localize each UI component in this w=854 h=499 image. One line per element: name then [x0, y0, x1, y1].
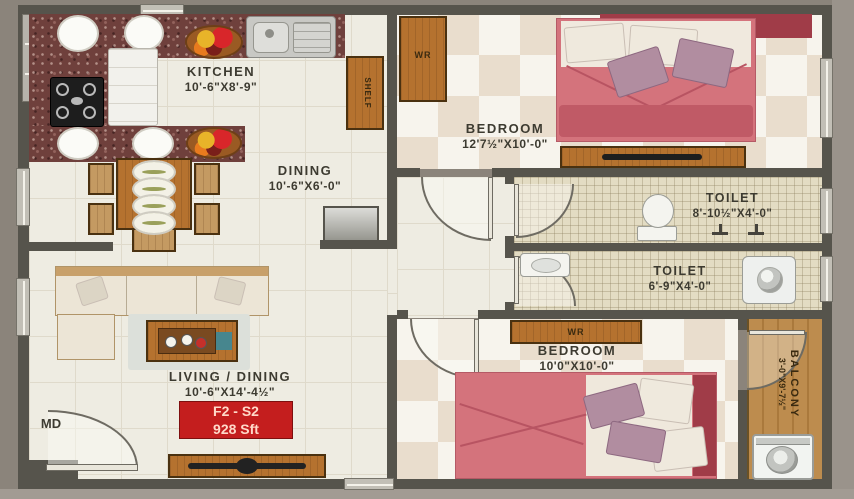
- tray-cup: [195, 337, 207, 349]
- bedroom2-door-leaf: [474, 319, 479, 377]
- wall-bedroom2-top-right: [478, 310, 832, 319]
- bedroom2-label: BEDROOM 10'0"X10'-0": [487, 343, 667, 374]
- kitchen-plate: [132, 127, 174, 160]
- tv-stand: [236, 458, 258, 474]
- window-mullion: [347, 484, 393, 486]
- corridor-opening-floor: [387, 247, 397, 315]
- main-door-leaf: [46, 464, 138, 471]
- toilet1-door-leaf: [514, 184, 519, 236]
- toilet1-tap: [755, 224, 758, 234]
- tray-cup: [181, 334, 193, 346]
- bedroom2-bed: [455, 372, 717, 479]
- sofa-cushion: [75, 275, 109, 306]
- bed-pillow: [564, 22, 627, 63]
- wall-balcony-lower: [738, 390, 747, 480]
- kitchen-plate: [57, 15, 99, 52]
- sofa-chaise: [57, 314, 115, 360]
- bedroom1-name: BEDROOM: [415, 121, 595, 137]
- toilet1-tap: [719, 224, 722, 234]
- window-bottom-living: [344, 478, 394, 490]
- sofa-divider: [126, 276, 127, 315]
- kitchen-label: KITCHEN 10'-6"X8'-9": [131, 64, 311, 95]
- washing-machine-drum: [766, 446, 798, 474]
- bed-fold: [460, 414, 587, 447]
- bed-fold: [459, 403, 583, 445]
- stove-center: [71, 97, 83, 105]
- toilet1-label: TOILET 8'-10½"X4'-0": [640, 191, 825, 221]
- dining-chair: [194, 203, 220, 235]
- floor-plan: SHELF KITCHEN 10'-6"X8'-9" DINING 10'-6"…: [0, 0, 854, 499]
- kitchen-fruit-platter: [186, 127, 242, 159]
- toilet1-wc-tank: [637, 226, 677, 241]
- wall-balcony-upper: [738, 319, 747, 330]
- washbasin-bowl: [531, 258, 561, 273]
- wall-toilets-left-a: [505, 168, 514, 184]
- stove-burner: [56, 83, 69, 96]
- stove: [50, 77, 104, 127]
- window-mullion: [826, 259, 828, 301]
- coffee-table: [146, 320, 238, 362]
- dining-chair: [88, 163, 114, 195]
- window-mullion: [143, 10, 183, 12]
- sofa-back: [56, 267, 268, 276]
- bedroom1-tv: [602, 154, 702, 160]
- wall-toilet-divider: [505, 243, 832, 251]
- window-mullion: [23, 171, 25, 225]
- balcony-dims: 3'-0"X9'-7½": [776, 324, 787, 444]
- bedroom2-dims: 10'0"X10'-0": [487, 359, 667, 374]
- bedroom1-door-leaf: [488, 177, 493, 239]
- tray-cup: [165, 336, 177, 348]
- living-name: LIVING / DINING: [130, 369, 330, 385]
- kitchen-plate: [57, 127, 99, 160]
- kitchen-plate: [124, 15, 164, 51]
- window-right-bedroom1: [820, 58, 833, 138]
- wall-bedroom1-bottom-right: [492, 168, 832, 177]
- sofa-divider: [196, 276, 197, 315]
- sink-faucet: [265, 29, 274, 38]
- toilet2-name: TOILET: [590, 264, 770, 280]
- window-mullion: [23, 281, 25, 335]
- sofa: [55, 266, 269, 316]
- wall-center-vertical-lower: [387, 315, 397, 484]
- dining-chair: [88, 203, 114, 235]
- living-tv-console: [168, 454, 326, 478]
- balcony-label: BALCONY 3'-0"X9'-7½": [768, 324, 800, 444]
- table-mat: [216, 332, 232, 350]
- wall-stub-living-left: [29, 242, 113, 251]
- balcony-name: BALCONY: [787, 324, 800, 444]
- toilet1-name: TOILET: [640, 191, 825, 207]
- sofa-cushion: [214, 276, 247, 306]
- window-right-toilet2: [820, 256, 833, 302]
- main-door-label: MD: [30, 416, 72, 432]
- kitchen-dims: 10'-6"X8'-9": [131, 80, 311, 95]
- living-label: LIVING / DINING 10'-6"X14'-4½": [130, 369, 330, 400]
- window-mullion: [826, 191, 828, 233]
- washing-machine: [752, 434, 814, 480]
- study-table: [323, 206, 379, 242]
- dining-label: DINING 10'-6"X6'-0": [215, 163, 395, 194]
- bedroom2-name: BEDROOM: [487, 343, 667, 359]
- kitchen-name: KITCHEN: [131, 64, 311, 80]
- toilet2-door-leaf: [514, 256, 519, 304]
- window-mullion: [826, 61, 828, 137]
- wall-bedroom1-bottom-left: [397, 168, 420, 177]
- unit-code: F2 - S2: [180, 402, 292, 420]
- unit-badge: F2 - S2 928 Sft: [179, 401, 293, 439]
- toilet2-washbasin: [520, 253, 570, 277]
- dining-name: DINING: [215, 163, 395, 179]
- living-dims: 10'-6"X14'-4½": [130, 385, 330, 400]
- sink-drainboard: [293, 22, 331, 53]
- window-left-lower: [16, 278, 30, 336]
- stove-burner: [83, 106, 96, 119]
- background-bottom: [0, 489, 854, 499]
- kitchen-fruit-platter: [185, 25, 243, 59]
- wall-center-vertical-upper: [387, 5, 397, 247]
- wall-bedroom2-top-left: [397, 310, 408, 319]
- background-right: [832, 0, 854, 499]
- toilet2-dims: 6'-9"X4'-0": [590, 280, 770, 294]
- unit-area: 928 Sft: [180, 420, 292, 438]
- bedroom2-wardrobe-label: WR: [510, 327, 642, 337]
- wall-bottom: [18, 479, 832, 489]
- dining-plate: [132, 211, 176, 235]
- stove-burner: [83, 83, 96, 96]
- toilet2-label: TOILET 6'-9"X4'-0": [590, 264, 770, 294]
- bedroom1-dims: 12'7½"X10'-0": [415, 137, 595, 152]
- dining-dims: 10'-6"X6'-0": [215, 179, 395, 194]
- kitchen-shelf-label: SHELF: [358, 58, 372, 128]
- coffee-tray: [158, 328, 216, 354]
- bedroom1-wardrobe-label: WR: [399, 50, 447, 60]
- washing-machine-panel: [756, 438, 810, 445]
- stove-burner: [56, 106, 69, 119]
- kitchen-sink: [246, 16, 336, 58]
- bed-pillow: [635, 377, 694, 424]
- window-left-upper: [16, 168, 30, 226]
- bedroom1-label: BEDROOM 12'7½"X10'-0": [415, 121, 595, 152]
- toilet1-dims: 8'-10½"X4'-0": [640, 207, 825, 221]
